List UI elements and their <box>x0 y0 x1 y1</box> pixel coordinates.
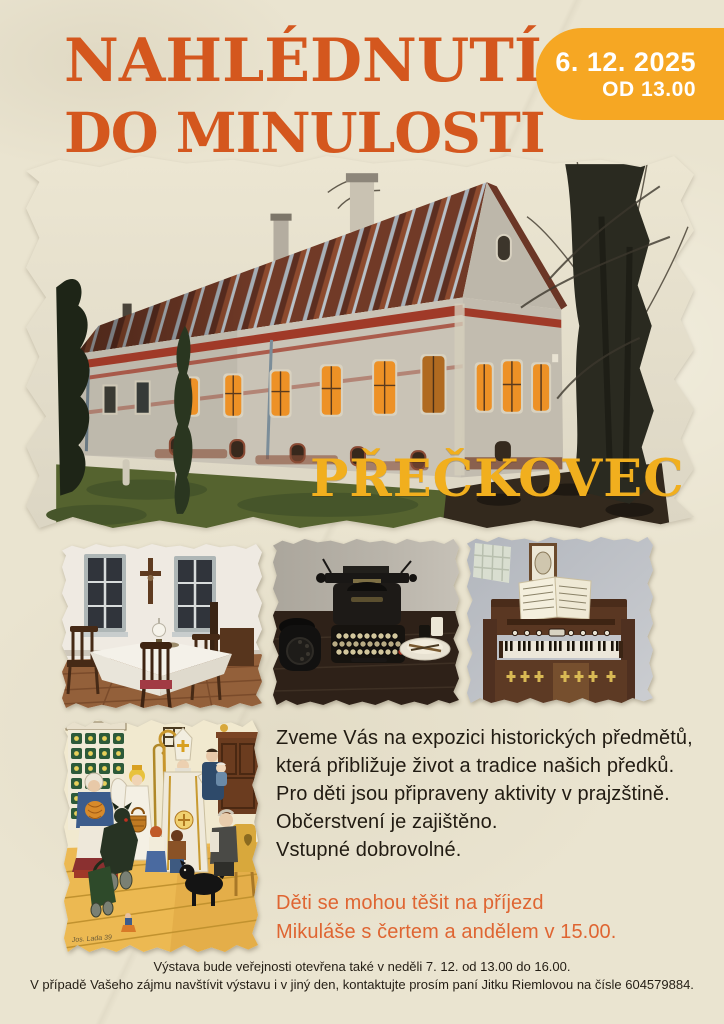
photo-typewriter <box>273 539 459 705</box>
dining-room-illustration <box>62 544 262 708</box>
hero-caption: PŘEČKOVEC <box>310 450 685 508</box>
event-poster: NAHLÉDNUTÍ DO MINULOSTI STRAHOVIC 6. 12.… <box>0 0 724 1024</box>
typewriter-illustration <box>273 539 459 705</box>
badge-date: 6. 12. 2025 <box>555 46 696 78</box>
highlight-line: Děti se mohou těšit na příjezd <box>276 889 712 918</box>
body-line: která přibližuje život a tradice našich … <box>276 752 712 780</box>
fine-print-line: V případě Vašeho zájmu navštívit výstavu… <box>0 976 724 994</box>
sheet-music <box>519 577 591 621</box>
gable-glowing-windows <box>475 359 551 414</box>
fine-print: Výstava bude veřejnosti otevřena také v … <box>0 958 724 993</box>
rotary-telephone <box>279 618 321 671</box>
typewriter-keys <box>332 633 404 655</box>
photo-dining-room <box>62 544 262 708</box>
badge-time: OD 13.00 <box>602 78 696 102</box>
window-reflection <box>473 543 511 583</box>
body-line: Vstupné dobrovolné. <box>276 836 712 864</box>
harmonium-illustration <box>467 537 653 703</box>
mikulas-folk-painting: Jos. Lada 39 <box>64 720 258 952</box>
fine-print-line: Výstava bude veřejnosti otevřena také v … <box>0 958 724 976</box>
body-line: Zveme Vás na expozici historických předm… <box>276 724 712 752</box>
keyboard <box>499 641 623 658</box>
date-badge: 6. 12. 2025 OD 13.00 <box>536 28 724 120</box>
photo-harmonium <box>467 537 653 703</box>
title-line-1: NAHLÉDNUTÍ <box>64 24 545 98</box>
invitation-paragraph: Zveme Vás na expozici historických předm… <box>276 724 712 864</box>
body-line: Pro děti jsou připraveny aktivity v praj… <box>276 780 712 808</box>
highlight-line: Mikuláše s čertem a andělem v 15.00. <box>276 918 712 947</box>
stop-knobs <box>512 629 609 636</box>
mikulas-announcement: Děti se mohou těšit na příjezd Mikuláše … <box>276 889 712 947</box>
body-line: Občerstvení je zajištěno. <box>276 808 712 836</box>
invitation-text: Zveme Vás na expozici historických předm… <box>276 724 712 947</box>
mikulas-painting-illustration: Jos. Lada 39 <box>64 720 258 952</box>
window-left <box>82 554 128 637</box>
